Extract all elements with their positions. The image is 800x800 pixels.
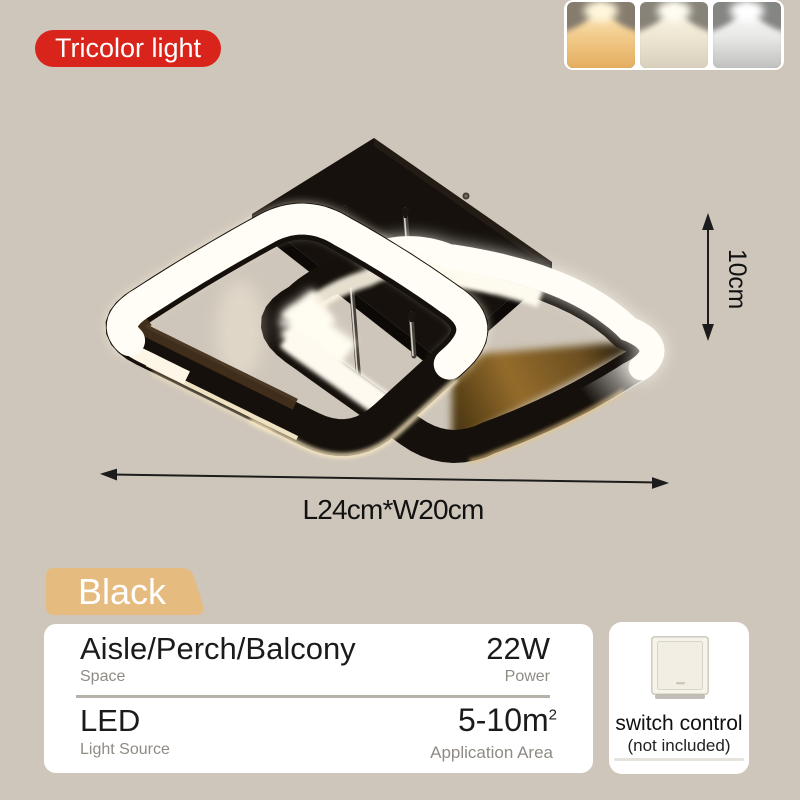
svg-text:L24cm*W20cm: L24cm*W20cm (302, 494, 483, 525)
svg-text:10cm: 10cm (723, 249, 751, 309)
svg-text:Black: Black (78, 571, 167, 612)
